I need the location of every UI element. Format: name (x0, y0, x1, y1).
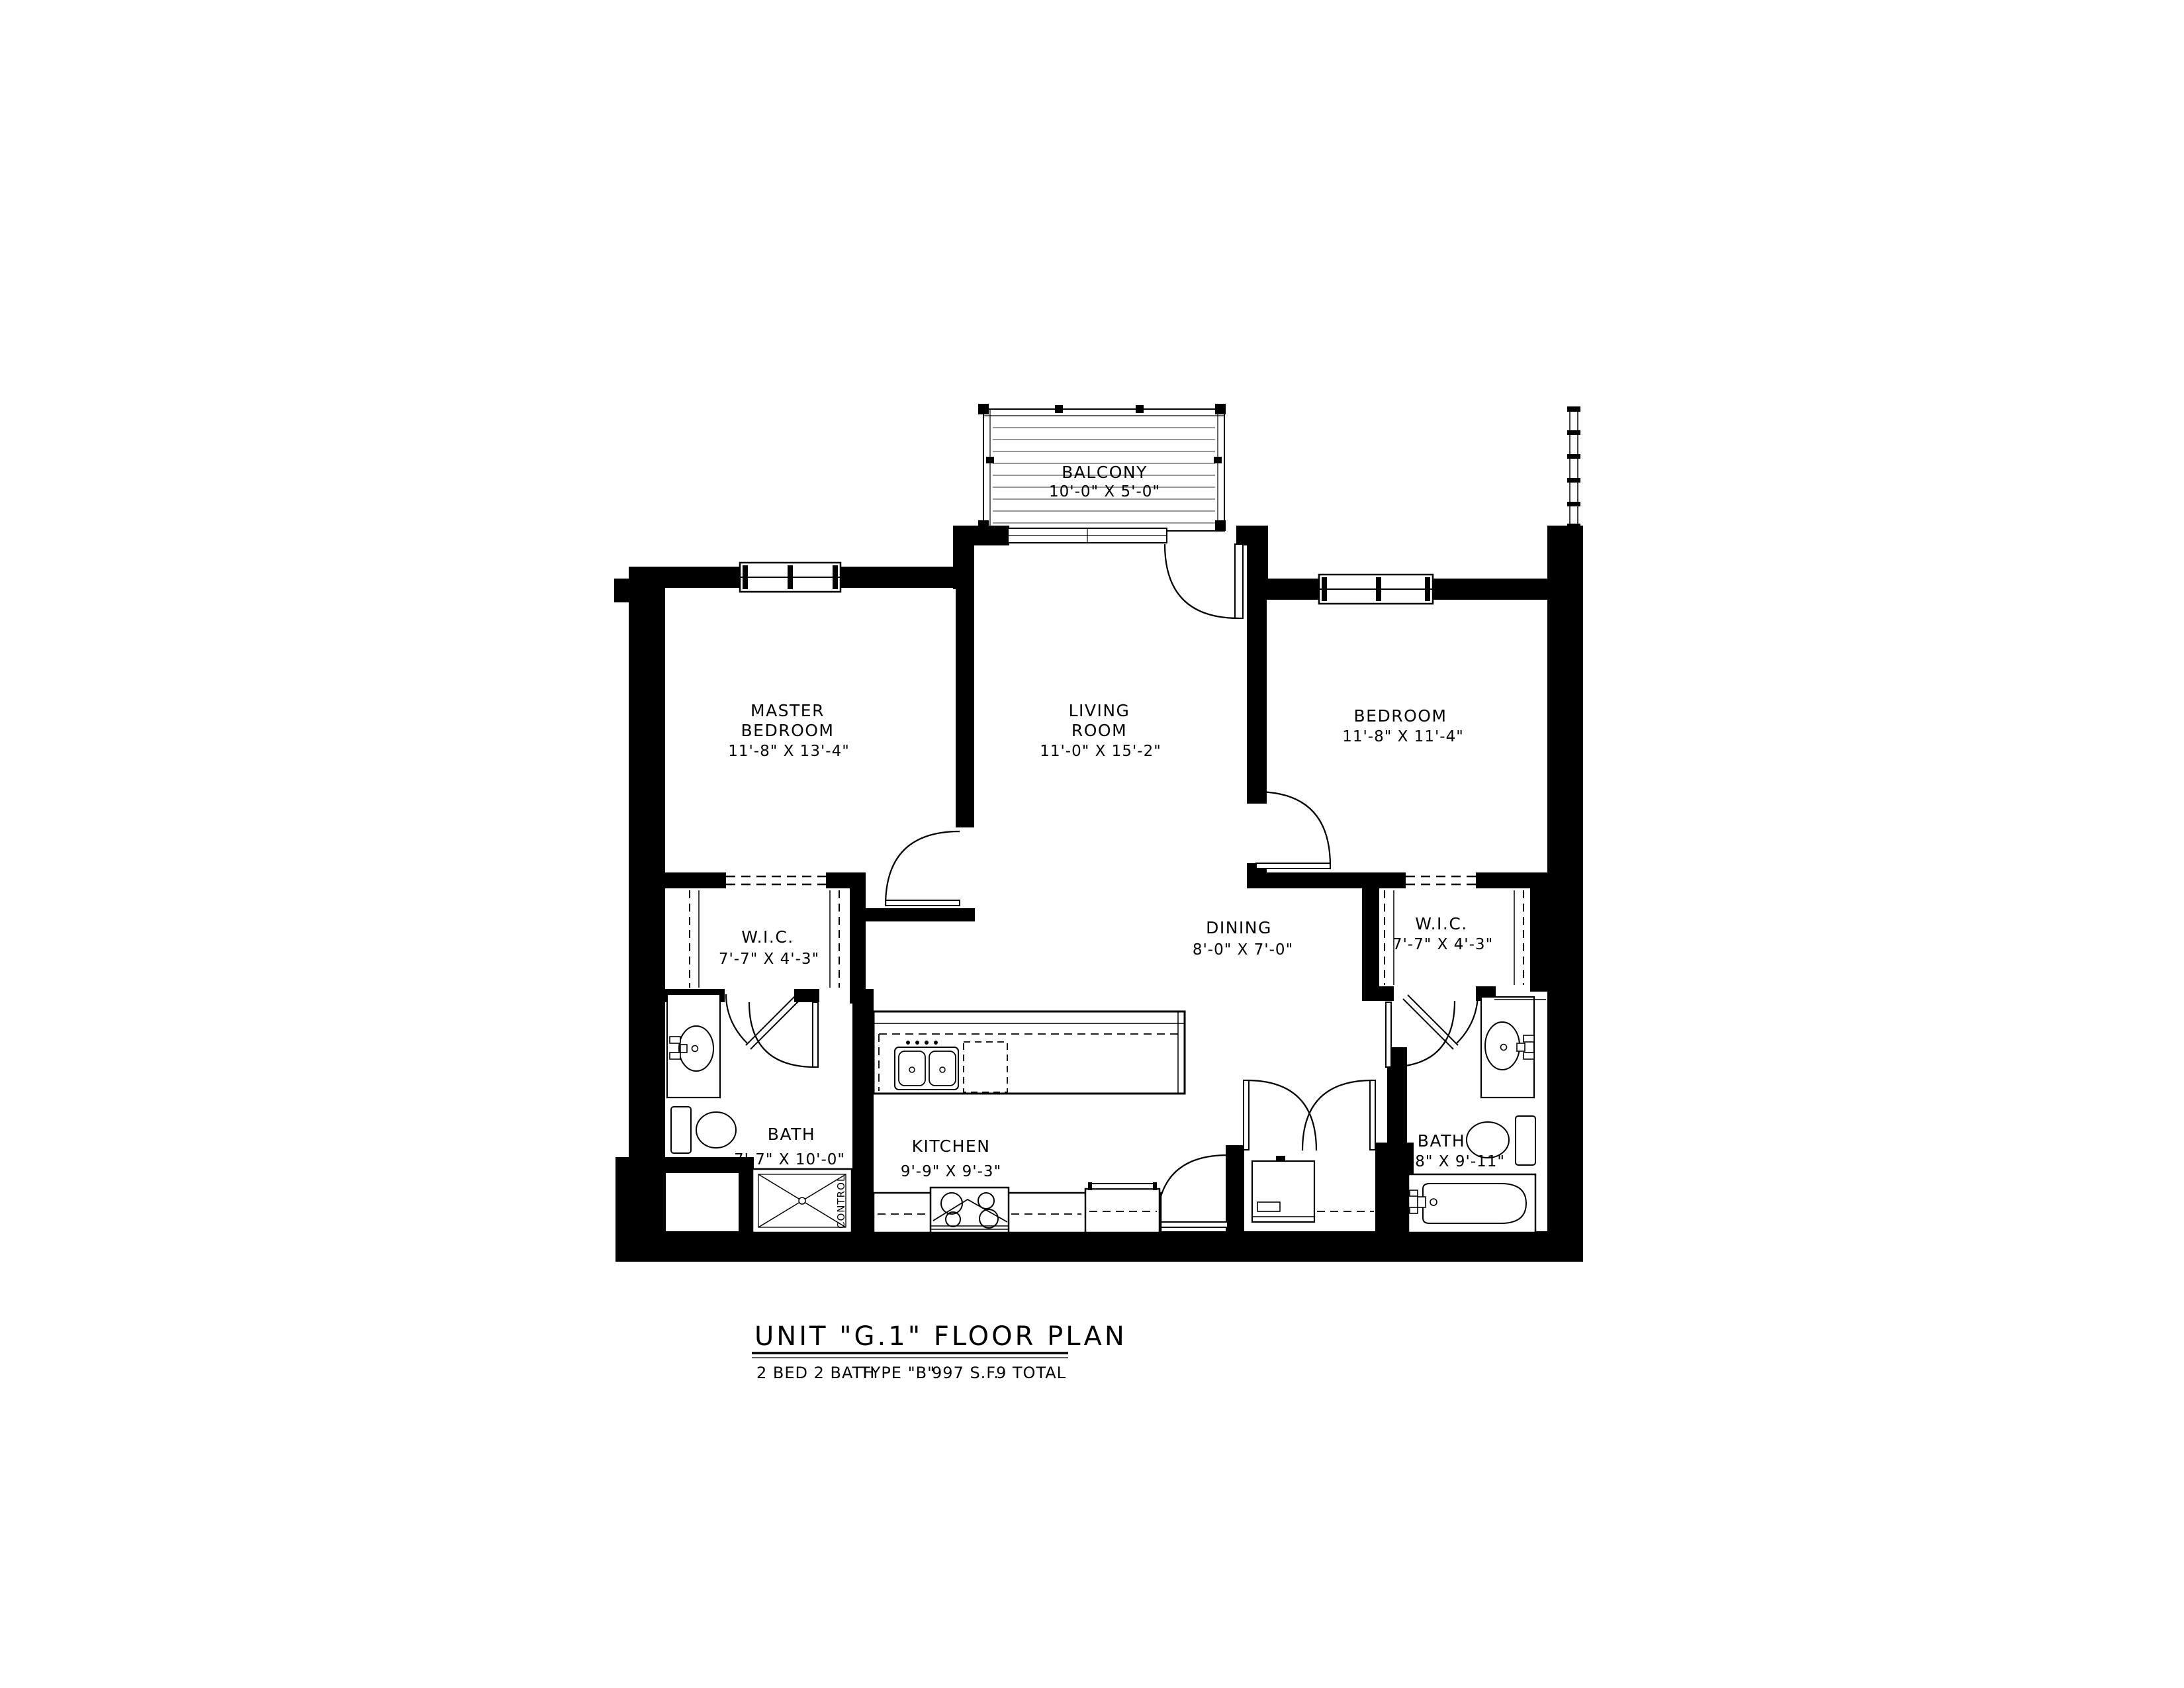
wall-left-pier (615, 1157, 666, 1262)
balcony-door (1008, 528, 1243, 618)
balcony-door-swing (1165, 544, 1239, 618)
wall-wic-left-top-a (665, 872, 726, 888)
room-label-bath-right: BATH (1418, 1131, 1465, 1150)
bath-left-doors (726, 994, 818, 1067)
refrigerator-icon (1085, 1182, 1160, 1233)
room-label-wic-left: W.I.C. (741, 927, 794, 947)
room-dims-bath-left: 7'-7" X 10'-0" (734, 1151, 845, 1168)
room-dims-bath-right: 5'-8" X 9'-11" (1394, 1153, 1505, 1170)
plan-subtitle: 2 BED 2 BATH TYPE "B" 997 S.F. 9 TOTAL (756, 1364, 1066, 1382)
wall-master-door-jamb (956, 817, 974, 827)
wall-wic-left-east (850, 872, 866, 1004)
wall-balcony-connector-left (953, 526, 974, 589)
kitchen-sink-icon (895, 1041, 958, 1090)
room-label-living-room-1: LIVING (1069, 701, 1130, 720)
room-dims-wic-right: 7'-7" X 4'-3" (1392, 936, 1493, 953)
room-label-bath-left: BATH (768, 1125, 815, 1144)
toilet-left-bowl (696, 1112, 736, 1148)
stove-icon (931, 1188, 1009, 1233)
entry-door (1157, 1155, 1228, 1227)
master-door-leaf (886, 900, 960, 906)
bath-right-fixtures (1408, 997, 1535, 1233)
wall-bedroom-west (1247, 588, 1267, 793)
wall-exterior-left (629, 567, 665, 1261)
wall-bath-left-top-b (794, 989, 819, 1002)
wall-wic-right-east (1530, 888, 1547, 992)
washer-dryer-icon (1252, 1156, 1374, 1222)
neighbor-balcony-rail (1567, 406, 1580, 529)
room-label-balcony: BALCONY (1062, 463, 1148, 482)
kitchen-counter-run (874, 1182, 1161, 1233)
room-dims-master-bedroom: 11'-8" X 13'-4" (728, 743, 850, 760)
wall-entry-stub (1226, 1145, 1244, 1233)
window-bedroom (1319, 575, 1433, 604)
bath-left-fixtures: CONTROL (667, 994, 852, 1233)
wall-wic-right-west (1362, 888, 1379, 992)
room-dims-balcony: 10'-0" X 5'-0" (1049, 483, 1160, 500)
room-dims-wic-left: 7'-7" X 4'-3" (719, 951, 819, 968)
kitchen-island (874, 1011, 1185, 1094)
shower-drain-icon (799, 1197, 805, 1204)
entry-door-leaf (1157, 1222, 1228, 1227)
toilet-left-tank (671, 1107, 691, 1153)
bathtub-icon (1408, 1174, 1535, 1233)
master-door-swing (886, 831, 960, 906)
room-dims-bedro om: 11'-8" X 11'-4" (1342, 728, 1464, 745)
title-block: UNIT "G.1" FLOOR PLAN 2 BED 2 BATH TYPE … (752, 1321, 1127, 1382)
wall-left-notch (614, 579, 631, 602)
bedroom-door-swing (1256, 792, 1330, 866)
shower-control-label: CONTROL (835, 1176, 847, 1229)
wall-alcove-divider (739, 1173, 753, 1234)
room-label-dining: DINING (1206, 918, 1272, 937)
master-bedroom-door (886, 831, 960, 906)
room-label-master-bedroom-1: MASTER (751, 701, 825, 720)
room-label-wic-right: W.I.C. (1415, 914, 1468, 933)
laundry-closet-doors (1244, 1080, 1375, 1150)
toilet-right-bowl (1467, 1122, 1509, 1158)
room-label-bedroom: BEDROOM (1354, 706, 1447, 726)
wall-master-living (956, 588, 974, 817)
room-label-kitchen: KITCHEN (912, 1137, 991, 1156)
room-label-master-bedroom-2: BEDROOM (741, 721, 835, 740)
room-label-living-room-2: ROOM (1071, 721, 1127, 740)
plan-title: UNIT "G.1" FLOOR PLAN (754, 1321, 1127, 1352)
wall-bath-left-east (852, 989, 874, 1234)
window-master-bedroom (740, 563, 841, 592)
room-dims-living-room: 11'-0" X 15'-2" (1040, 743, 1161, 760)
shower-left: CONTROL (752, 1169, 852, 1233)
wall-bath-right-top-a (1362, 986, 1394, 1001)
wall-bedroom-door-jamb (1247, 793, 1267, 804)
room-dims-dining: 8'-0" X 7'-0" (1193, 941, 1293, 959)
entry-door-swing (1157, 1155, 1228, 1226)
floor-plan-drawing: CONTROL (0, 0, 2184, 1688)
room-dims-kitchen: 9'-9" X 9'-3" (901, 1163, 1001, 1180)
toilet-right-tank (1516, 1116, 1535, 1165)
wall-wic-right-top-b (1476, 872, 1547, 888)
wall-wic-right-top-a (1267, 872, 1406, 888)
balcony-door-leaf (1235, 544, 1243, 618)
bedroom-door (1256, 792, 1330, 868)
wall-exterior-bottom (615, 1231, 1583, 1262)
bedroom-door-leaf (1256, 863, 1330, 868)
wall-master-south (864, 908, 975, 921)
wall-exterior-right (1547, 526, 1583, 1261)
